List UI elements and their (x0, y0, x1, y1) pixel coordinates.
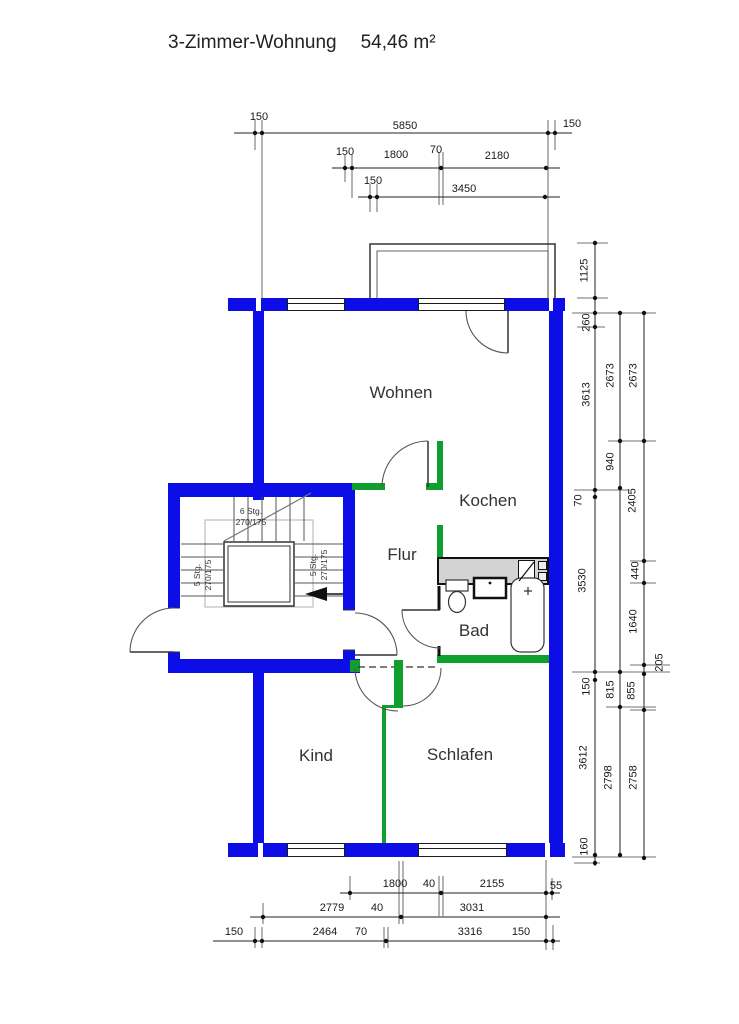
dim-top-3450: 3450 (442, 183, 486, 196)
dim-top-150-row3: 150 (351, 175, 395, 188)
stair-label-left-line1: 5 Stg. (192, 545, 203, 605)
schlafen-door-arc (403, 668, 441, 706)
stair-label-left-line2: 270/175 (203, 545, 214, 605)
stair-label-right: 5 Stg. 270/175 (308, 535, 330, 595)
dim-right-2758: 2758 (628, 756, 641, 800)
dim-top-5850: 5850 (383, 120, 427, 133)
dim-bottom-3316: 3316 (448, 926, 492, 939)
stair-label-right-line2: 270/175 (319, 535, 330, 595)
dim-right-3613: 3613 (581, 373, 594, 417)
dim-right-440: 440 (630, 549, 643, 593)
dim-bottom-55: 55 (534, 880, 578, 893)
dim-top-150-left: 150 (237, 111, 281, 124)
apartment-door-arc (355, 613, 397, 655)
balcony-outline (370, 244, 555, 298)
wohnen-door-arc (382, 441, 428, 487)
plan-title-area: 54,46 m² (361, 32, 436, 53)
dim-bottom-150-right: 150 (499, 926, 543, 939)
dim-bottom-70: 70 (339, 926, 383, 939)
room-label-kochen: Kochen (443, 490, 533, 512)
dim-right-150: 150 (581, 665, 594, 709)
dim-top-1800: 1800 (374, 149, 418, 162)
stair-label-right-line1: 5 Stg. (308, 535, 319, 595)
floor-plan: 3-Zimmer-Wohnung54,46 m² (0, 0, 739, 1024)
dim-right-2405: 2405 (627, 479, 640, 523)
dim-bottom-2155: 2155 (470, 878, 514, 891)
plan-title: 3-Zimmer-Wohnung54,46 m² (168, 32, 436, 54)
dim-bottom-40-b: 40 (355, 902, 399, 915)
dim-right-1125: 1125 (579, 249, 592, 293)
stair-label-top-line1: 6 Stg. (211, 506, 291, 517)
room-label-bad: Bad (429, 620, 519, 642)
dim-right-70: 70 (573, 479, 586, 523)
dim-right-160: 160 (579, 825, 592, 869)
stair-label-top-line2: 270/175 (211, 517, 291, 528)
stair-label-left: 5 Stg. 270/175 (192, 545, 214, 605)
dim-right-2673-b: 2673 (628, 354, 641, 398)
dim-top-150-row2: 150 (323, 146, 367, 159)
stair-label-top: 6 Stg. 270/175 (211, 506, 291, 528)
dim-right-2673-a: 2673 (605, 354, 618, 398)
kind-door-arc (355, 668, 398, 711)
dim-top-150-right: 150 (550, 118, 594, 131)
dim-right-3530: 3530 (577, 559, 590, 603)
room-label-flur: Flur (357, 544, 447, 566)
toilet-cistern (446, 580, 468, 591)
room-label-kind: Kind (271, 745, 361, 767)
dim-bottom-3031: 3031 (450, 902, 494, 915)
dim-right-3612: 3612 (578, 736, 591, 780)
room-label-wohnen: Wohnen (356, 382, 446, 404)
dim-right-815: 815 (605, 668, 618, 712)
dim-right-940: 940 (605, 440, 618, 484)
plan-title-text: 3-Zimmer-Wohnung (168, 32, 337, 53)
dim-right-2798: 2798 (603, 756, 616, 800)
dim-bottom-150-left: 150 (212, 926, 256, 939)
dim-right-855: 855 (626, 669, 639, 713)
dim-right-205: 205 (654, 641, 667, 685)
dim-top-2180: 2180 (475, 150, 519, 163)
room-label-schlafen: Schlafen (415, 744, 505, 766)
dim-bottom-2779: 2779 (310, 902, 354, 915)
dim-bottom-40-a: 40 (407, 878, 451, 891)
washbasin (474, 578, 506, 598)
dim-right-260: 260 (581, 301, 594, 345)
building-entrance-door-arc (130, 608, 174, 652)
washbasin-tap (489, 582, 492, 585)
balcony-door-arc (466, 311, 508, 353)
dim-top-70: 70 (414, 144, 458, 157)
dim-right-1640: 1640 (628, 600, 641, 644)
toilet-bowl (449, 592, 466, 613)
